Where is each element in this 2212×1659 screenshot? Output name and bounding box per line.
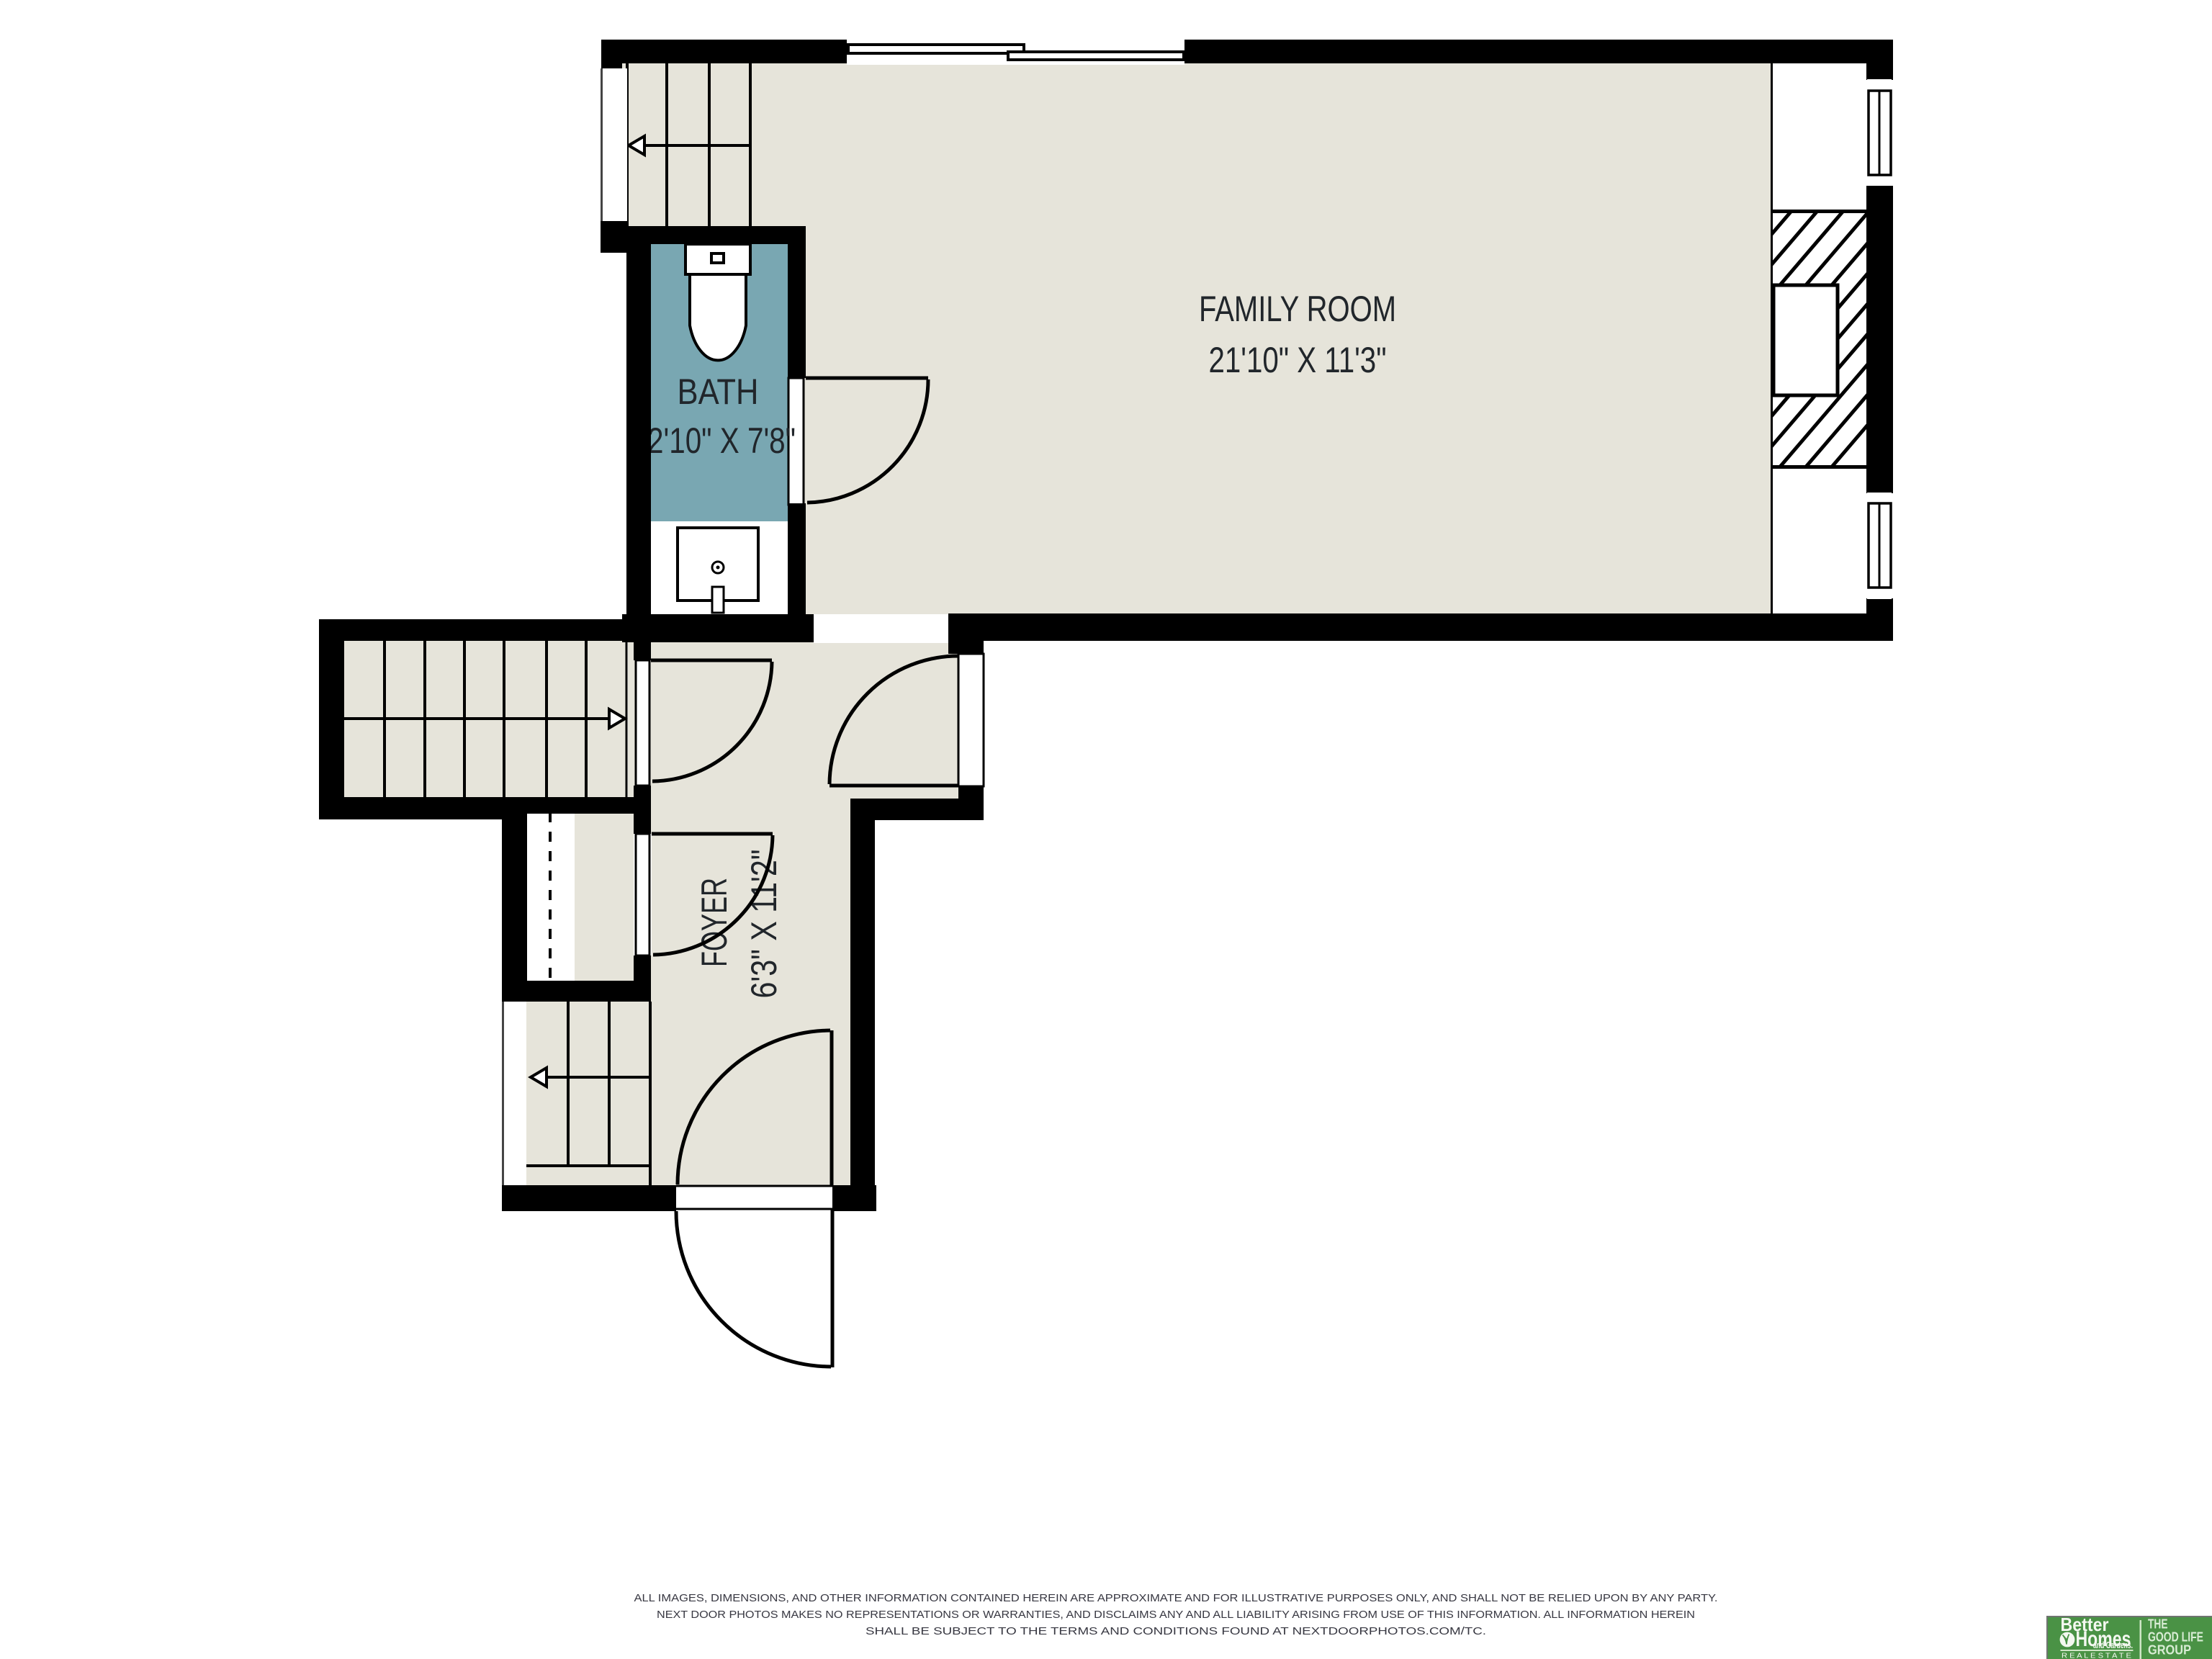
- svg-text:FAMILY ROOM: FAMILY ROOM: [1199, 289, 1396, 329]
- svg-text:R E A L E S T A T E: R E A L E S T A T E: [2062, 1652, 2131, 1659]
- svg-text:6'3" X 11'2": 6'3" X 11'2": [744, 850, 784, 999]
- svg-text:2'10" X 7'8": 2'10" X 7'8": [647, 421, 796, 461]
- svg-text:BATH: BATH: [678, 372, 759, 412]
- svg-text:GROUP: GROUP: [2148, 1642, 2191, 1658]
- svg-text:ALL IMAGES, DIMENSIONS, AND OT: ALL IMAGES, DIMENSIONS, AND OTHER INFORM…: [634, 1592, 1718, 1604]
- svg-text:FOYER: FOYER: [694, 878, 734, 967]
- svg-text:and Gardens.: and Gardens.: [2093, 1640, 2133, 1650]
- svg-text:NEXT DOOR PHOTOS MAKES NO REPR: NEXT DOOR PHOTOS MAKES NO REPRESENTATION…: [657, 1609, 1695, 1621]
- svg-text:SHALL BE SUBJECT TO THE TERMS: SHALL BE SUBJECT TO THE TERMS AND CONDIT…: [866, 1625, 1486, 1637]
- svg-text:21'10" X 11'3": 21'10" X 11'3": [1209, 340, 1387, 380]
